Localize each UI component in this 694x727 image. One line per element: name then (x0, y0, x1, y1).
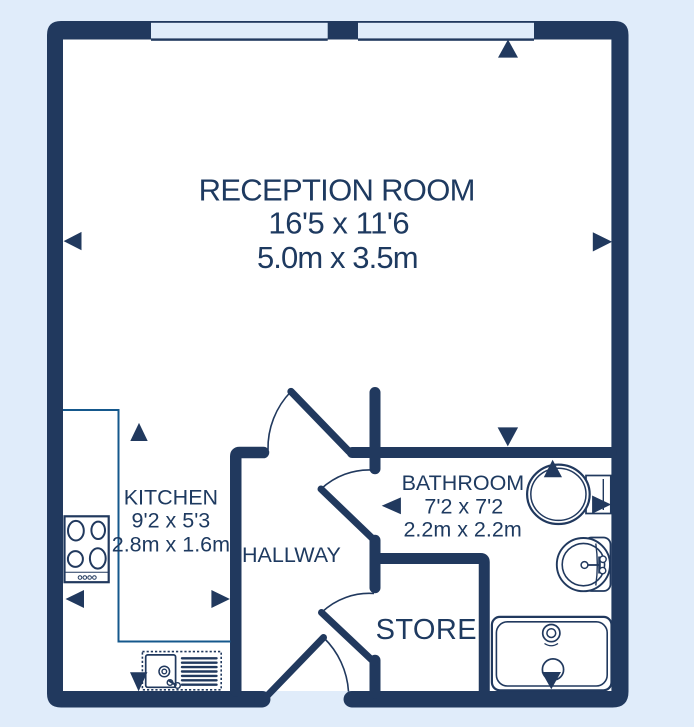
svg-text:BATHROOM: BATHROOM (402, 471, 525, 495)
svg-text:2.2m x 2.2m: 2.2m x 2.2m (403, 517, 521, 541)
svg-text:16'5 x 11'6: 16'5 x 11'6 (268, 206, 409, 241)
svg-text:7'2 x 7'2: 7'2 x 7'2 (424, 495, 503, 519)
svg-text:STORE: STORE (376, 614, 477, 646)
svg-text:KITCHEN: KITCHEN (124, 485, 218, 509)
svg-text:5.0m x 3.5m: 5.0m x 3.5m (257, 240, 418, 275)
svg-text:2.8m x 1.6m: 2.8m x 1.6m (112, 533, 230, 557)
svg-text:RECEPTION ROOM: RECEPTION ROOM (199, 173, 475, 208)
svg-text:9'2 x 5'3: 9'2 x 5'3 (132, 509, 211, 533)
svg-text:HALLWAY: HALLWAY (242, 543, 341, 567)
